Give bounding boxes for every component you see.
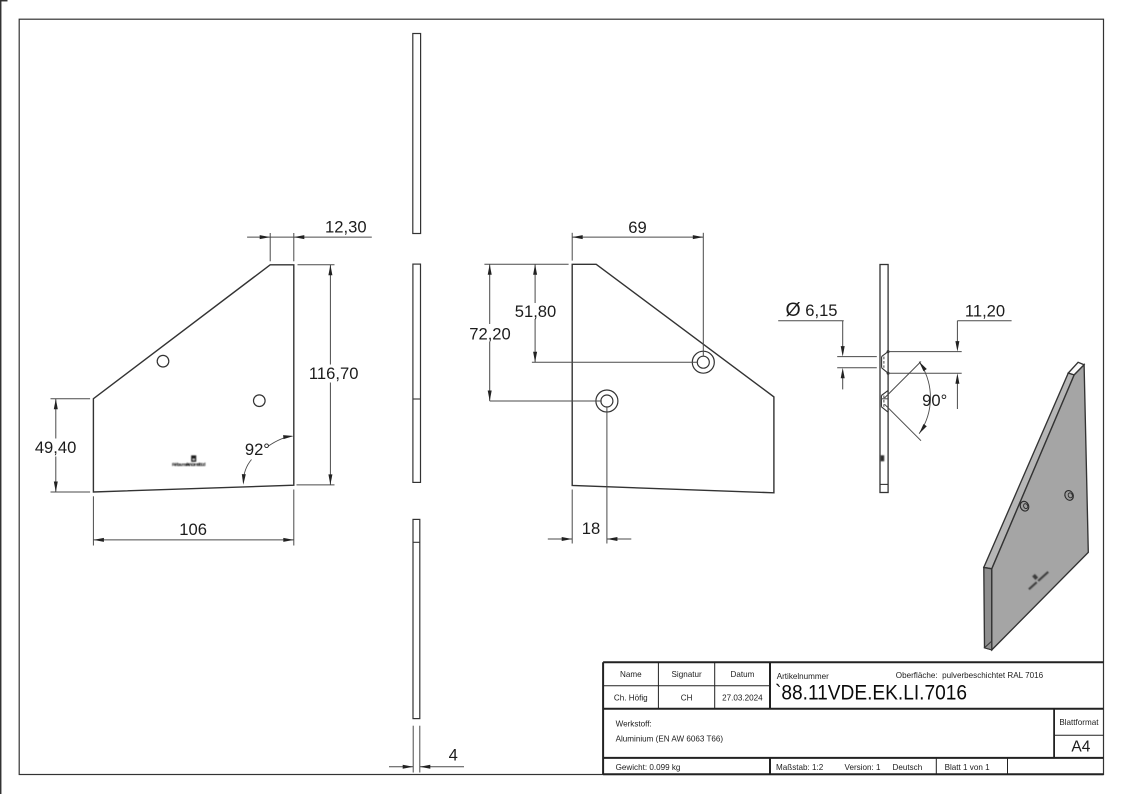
- svg-text:49,40: 49,40: [35, 438, 77, 457]
- svg-text:Gewicht: 0.099 kg: Gewicht: 0.099 kg: [616, 763, 681, 772]
- svg-text:116,70: 116,70: [309, 364, 359, 383]
- svg-text:92°: 92°: [245, 440, 270, 459]
- svg-text:Name: Name: [620, 670, 642, 679]
- svg-text:Datum: Datum: [730, 670, 754, 679]
- svg-text:`88.11VDE.EK.LI.7016: `88.11VDE.EK.LI.7016: [775, 682, 967, 705]
- svg-text:Version: 1: Version: 1: [845, 763, 881, 772]
- svg-text:Maßstab: 1:2: Maßstab: 1:2: [776, 763, 824, 772]
- svg-text:4: 4: [449, 746, 458, 765]
- svg-text:Aluminium (EN AW 6063 T66): Aluminium (EN AW 6063 T66): [616, 734, 724, 743]
- svg-text:Deutsch: Deutsch: [893, 763, 923, 772]
- svg-text:106: 106: [179, 520, 207, 539]
- svg-text:90°: 90°: [922, 391, 947, 410]
- svg-text:11,20: 11,20: [965, 302, 1005, 321]
- svg-text:A4: A4: [1071, 739, 1090, 756]
- svg-text:Signatur: Signatur: [672, 670, 702, 679]
- svg-text:Blatt 1 von 1: Blatt 1 von 1: [945, 763, 990, 772]
- svg-text:27.03.2024: 27.03.2024: [722, 693, 763, 702]
- svg-text:18: 18: [582, 519, 600, 538]
- svg-text:72,20: 72,20: [469, 325, 511, 344]
- svg-text:69: 69: [628, 218, 646, 237]
- svg-text:51,80: 51,80: [515, 302, 557, 321]
- svg-text:Blattformat: Blattformat: [1059, 718, 1099, 727]
- svg-text:Ch. Höfig: Ch. Höfig: [614, 693, 648, 702]
- svg-text:12,30: 12,30: [325, 218, 367, 237]
- svg-text:Feinbaumarkt Würmtal-Süd: Feinbaumarkt Würmtal-Süd: [172, 462, 206, 467]
- svg-text:Oberfläche: pulverbeschichtet: Oberfläche: pulverbeschichtet RAL 7016: [896, 671, 1044, 680]
- svg-text:Ø 6,15: Ø 6,15: [785, 299, 837, 321]
- svg-text:CH: CH: [681, 693, 693, 702]
- svg-text:Werkstoff:: Werkstoff:: [616, 720, 652, 729]
- svg-text:Artikelnummer: Artikelnummer: [777, 672, 829, 681]
